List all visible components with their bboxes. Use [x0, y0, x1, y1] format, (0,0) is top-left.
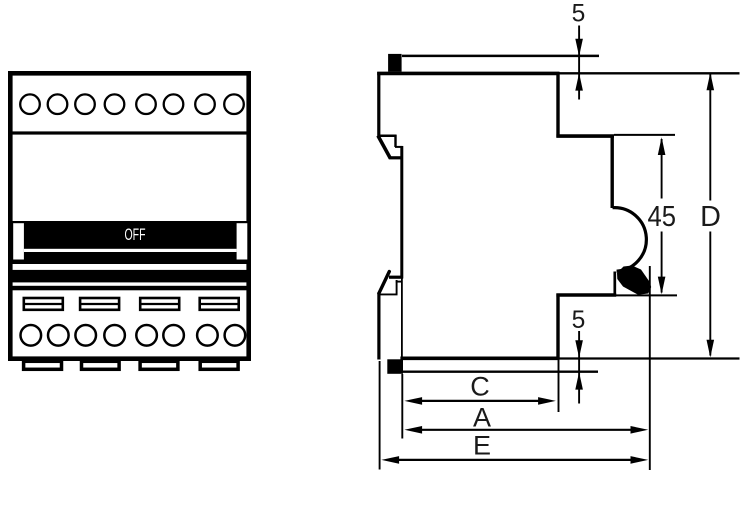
svg-text:D: D: [700, 201, 721, 233]
svg-text:45: 45: [648, 201, 677, 233]
svg-text:A: A: [473, 403, 491, 433]
svg-text:OFF: OFF: [125, 225, 146, 244]
svg-text:5: 5: [572, 307, 586, 334]
svg-text:E: E: [473, 431, 491, 461]
svg-text:5: 5: [572, 1, 586, 28]
svg-text:C: C: [470, 372, 490, 402]
